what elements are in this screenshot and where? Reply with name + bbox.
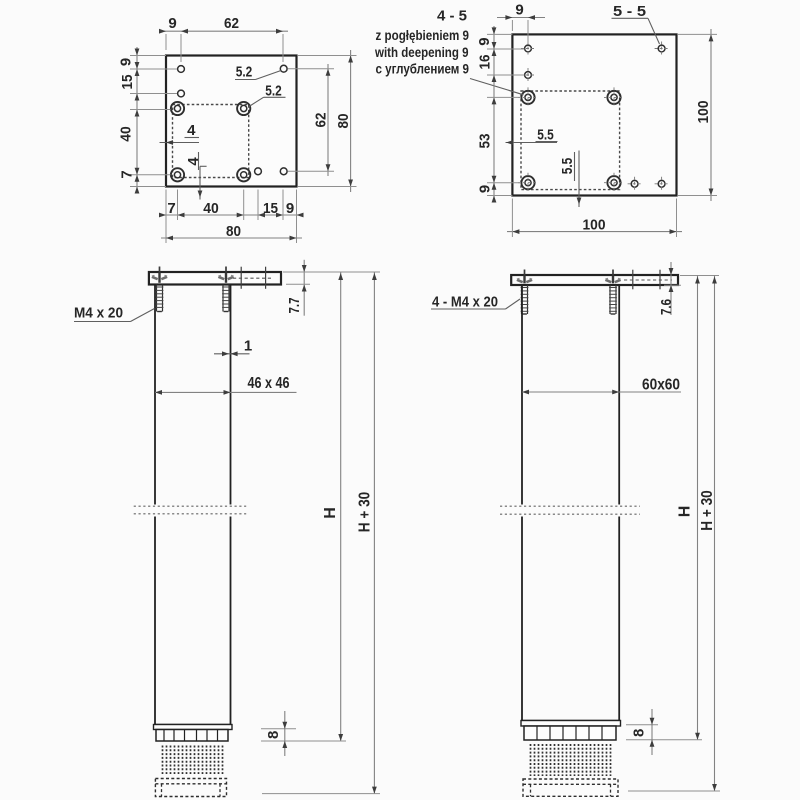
svg-text:9: 9 [168,15,176,32]
svg-text:15: 15 [119,75,136,90]
svg-text:4 - 5: 4 - 5 [437,9,467,25]
svg-text:4 - M4 x 20: 4 - M4 x 20 [432,293,498,310]
svg-text:4: 4 [185,157,202,166]
svg-text:60x60: 60x60 [642,377,680,394]
svg-text:5.2: 5.2 [236,64,253,81]
svg-text:8: 8 [631,729,648,737]
svg-text:46 x 46: 46 x 46 [248,375,290,392]
svg-text:100: 100 [695,101,712,124]
svg-text:40: 40 [117,126,134,142]
svg-text:9: 9 [286,200,294,217]
svg-text:80: 80 [335,114,352,129]
svg-text:7.7: 7.7 [286,298,303,314]
svg-text:15: 15 [263,200,278,217]
svg-text:with deepening 9: with deepening 9 [374,44,468,60]
svg-text:4: 4 [187,122,196,139]
svg-text:16: 16 [476,55,493,70]
svg-text:z pogłębieniem 9: z pogłębieniem 9 [376,27,470,43]
svg-text:7: 7 [118,170,135,178]
svg-text:9: 9 [476,185,493,193]
svg-text:с углублением 9: с углублением 9 [376,61,470,77]
svg-text:100: 100 [583,216,606,233]
svg-text:62: 62 [313,113,330,128]
svg-text:9: 9 [117,58,134,66]
svg-text:1: 1 [244,337,252,354]
svg-text:62: 62 [224,15,239,32]
svg-text:40: 40 [203,200,219,217]
svg-text:H + 30: H + 30 [357,492,374,533]
svg-text:5.5: 5.5 [559,158,576,175]
svg-text:5 - 5: 5 - 5 [613,4,646,20]
svg-text:7.6: 7.6 [658,299,675,315]
svg-text:H + 30: H + 30 [699,490,716,531]
svg-text:53: 53 [476,134,493,149]
svg-text:80: 80 [226,223,241,240]
svg-text:5.2: 5.2 [265,82,282,99]
svg-text:9: 9 [476,37,493,45]
svg-text:7: 7 [167,200,175,217]
svg-text:H: H [322,507,339,519]
svg-text:H: H [676,506,693,518]
svg-text:8: 8 [265,731,282,739]
svg-text:9: 9 [515,2,523,19]
svg-text:M4 x 20: M4 x 20 [74,305,123,322]
